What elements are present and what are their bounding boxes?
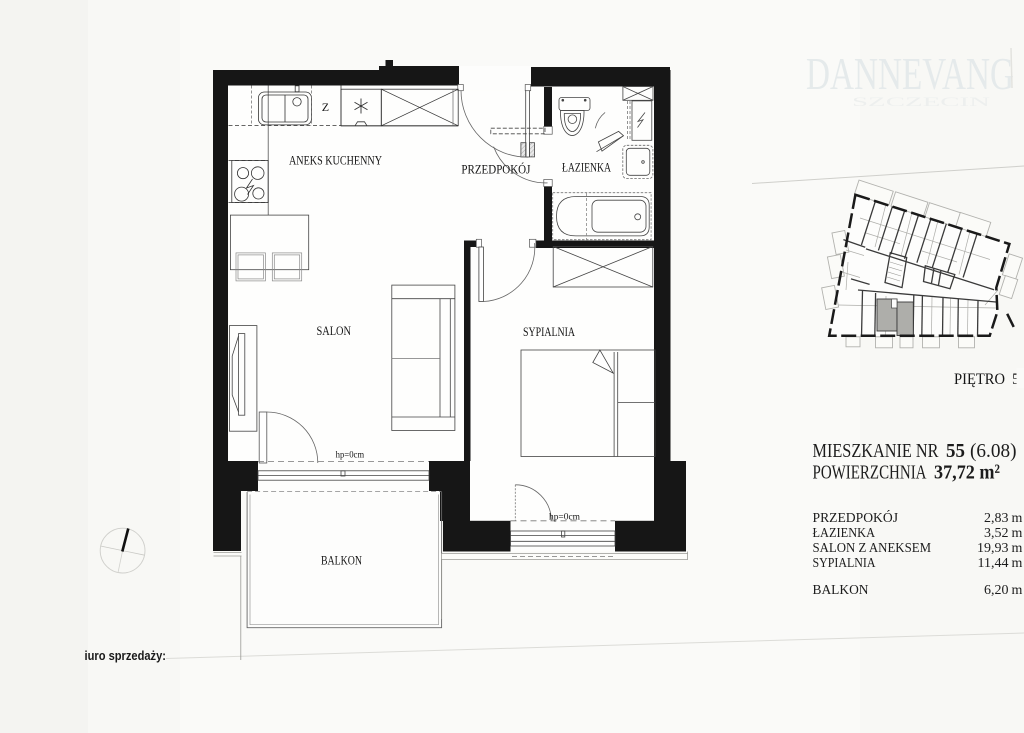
- svg-text:55: 55: [946, 440, 965, 462]
- svg-text:hp=0cm: hp=0cm: [549, 512, 581, 522]
- svg-text:PRZEDPOKÓJ: PRZEDPOKÓJ: [461, 163, 530, 177]
- svg-text:m: m: [1012, 583, 1023, 598]
- svg-text:BALKON: BALKON: [813, 583, 869, 598]
- svg-text:PRZEDPOKÓJ: PRZEDPOKÓJ: [813, 509, 899, 526]
- svg-text:m: m: [1012, 511, 1023, 526]
- svg-text:BALKON: BALKON: [321, 554, 362, 568]
- svg-text:37,72 m²: 37,72 m²: [934, 462, 1000, 484]
- svg-text:11,44: 11,44: [978, 556, 1009, 571]
- svg-text:(6.08): (6.08): [970, 440, 1017, 462]
- svg-text:m: m: [1012, 541, 1023, 556]
- svg-text:3,52: 3,52: [984, 526, 1009, 541]
- svg-text:hp=0cm: hp=0cm: [336, 451, 365, 461]
- svg-text:PIĘTRO: PIĘTRO: [954, 371, 1005, 388]
- svg-text:ŁAZIENKA: ŁAZIENKA: [813, 526, 876, 541]
- svg-text:19,93: 19,93: [977, 541, 1009, 556]
- svg-text:SZCZECIN: SZCZECIN: [852, 94, 991, 109]
- svg-text:DANNEVANG: DANNEVANG: [806, 48, 1014, 99]
- svg-text:ŁAZIENKA: ŁAZIENKA: [562, 161, 611, 175]
- svg-text:iuro sprzedaży:: iuro sprzedaży:: [85, 648, 167, 663]
- svg-text:ANEKS KUCHENNY: ANEKS KUCHENNY: [289, 153, 382, 167]
- svg-text:SYPIALNIA: SYPIALNIA: [813, 556, 877, 571]
- svg-text:m: m: [1012, 526, 1023, 541]
- svg-text:SYPIALNIA: SYPIALNIA: [523, 325, 575, 339]
- svg-text:6,20: 6,20: [984, 583, 1009, 598]
- svg-text:Z: Z: [322, 100, 329, 114]
- svg-text:MIESZKANIE NR: MIESZKANIE NR: [813, 440, 939, 462]
- svg-text:POWIERZCHNIA: POWIERZCHNIA: [813, 462, 927, 484]
- svg-text:2,83: 2,83: [984, 511, 1009, 526]
- svg-text:SALON Z ANEKSEM: SALON Z ANEKSEM: [813, 541, 932, 556]
- svg-text:m: m: [1012, 556, 1023, 571]
- svg-text:SALON: SALON: [317, 324, 352, 338]
